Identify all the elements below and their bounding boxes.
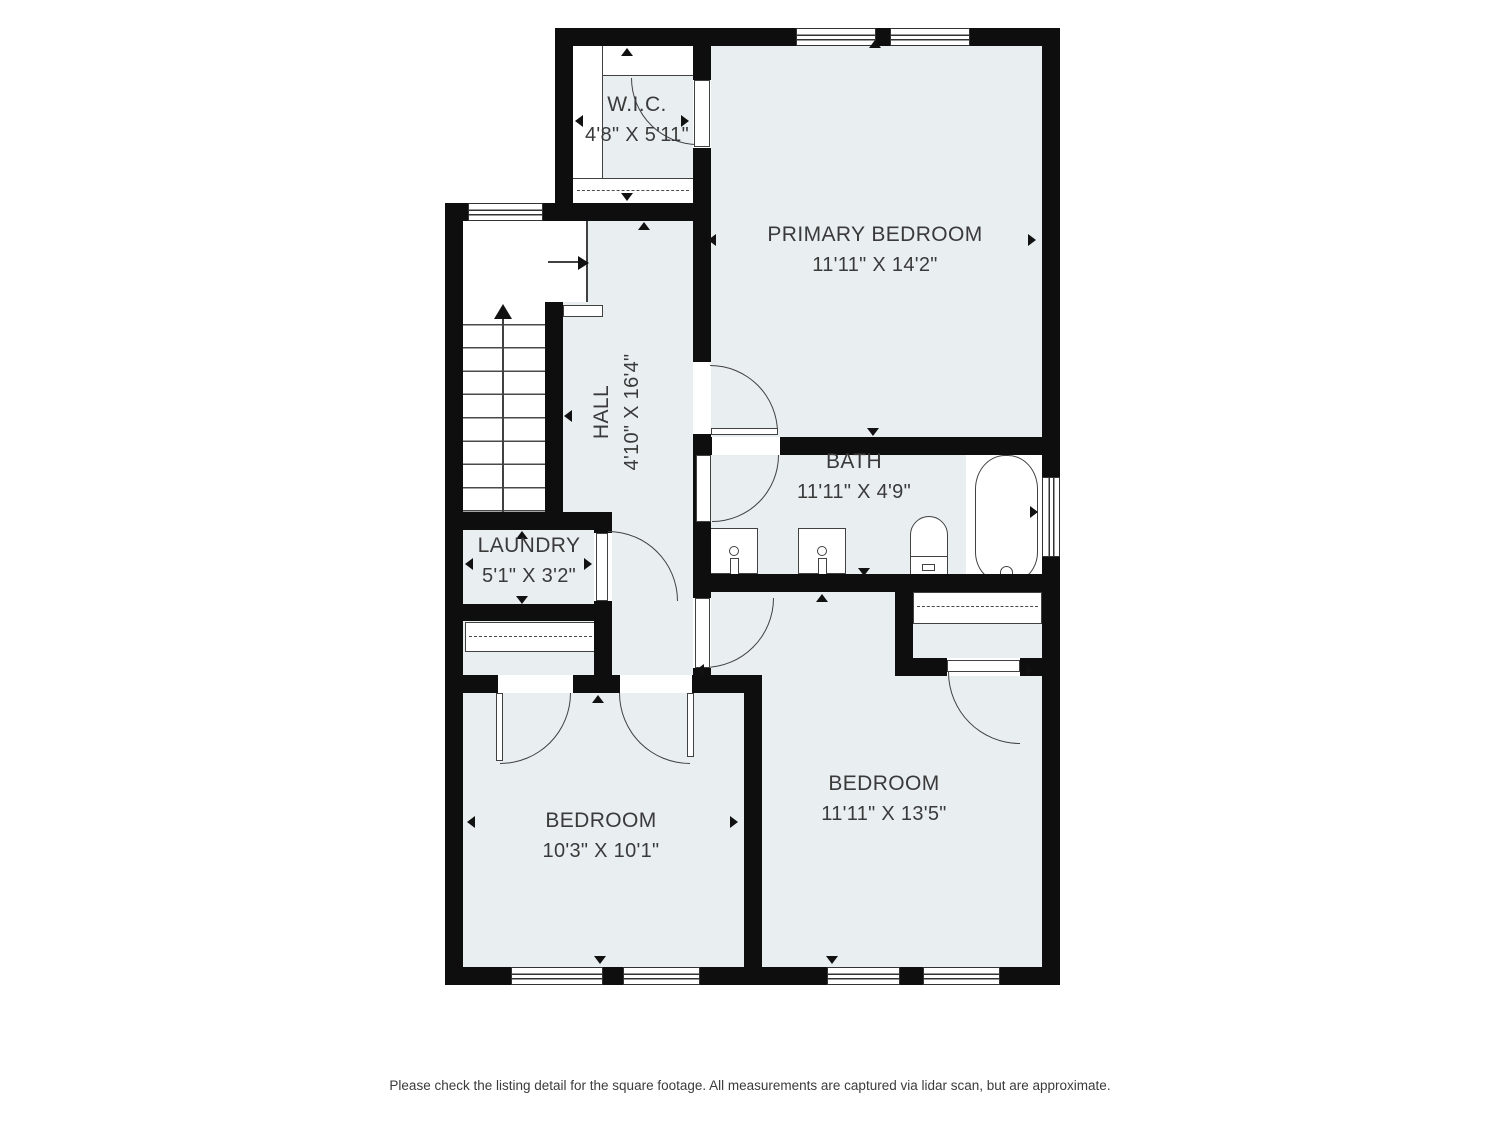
dimension-arrow <box>516 596 528 604</box>
wall-bath-bottom <box>693 574 1042 592</box>
room-name: BEDROOM <box>821 772 946 796</box>
room-dims: 4'8" X 5'11" <box>585 124 689 147</box>
room-label-bath: BATH 11'11" X 4'9" <box>797 450 911 504</box>
sink-faucet-1 <box>730 558 739 575</box>
dimension-arrow <box>826 956 838 964</box>
sink-drain-2 <box>817 546 827 556</box>
doorway-closet-left <box>498 675 573 693</box>
wall-bedrooms-top <box>445 675 762 693</box>
dimension-arrow <box>465 558 473 570</box>
sink-faucet-2 <box>818 558 827 575</box>
room-name: PRIMARY BEDROOM <box>767 223 982 247</box>
room-dims: 5'1" X 3'2" <box>478 565 581 588</box>
dimension-arrow <box>575 115 583 127</box>
room-label-primary-bedroom: PRIMARY BEDROOM 11'11" X 14'2" <box>767 223 982 277</box>
dimension-arrow <box>1030 506 1038 518</box>
dimension-arrow <box>730 816 738 828</box>
dimension-arrow <box>867 428 879 436</box>
wall-between-bedrooms <box>744 675 762 967</box>
window-bedroom-right-1 <box>827 967 900 985</box>
wall-stair-right <box>545 302 563 513</box>
dimension-arrow <box>621 48 633 56</box>
door-leaf-wic <box>694 80 710 147</box>
room-label-wic: W.I.C. 4'8" X 5'11" <box>585 93 689 147</box>
closet-right-shelf <box>913 592 1042 624</box>
stairs-center-line <box>502 306 504 513</box>
stairs-up-arrow <box>494 304 512 319</box>
room-name: HALL <box>590 354 614 471</box>
closet-left-rod <box>469 636 592 637</box>
floor-plan: W.I.C. 4'8" X 5'11" PRIMARY BEDROOM 11'1… <box>0 0 1500 1125</box>
wall-left-upper <box>555 28 573 221</box>
room-dims: 10'3" X 10'1" <box>543 840 660 863</box>
door-leaf-closet-right <box>947 660 1020 672</box>
room-label-laundry: LAUNDRY 5'1" X 3'2" <box>478 534 581 588</box>
dimension-arrow <box>869 40 881 48</box>
window-bedroom-right-2 <box>923 967 1000 985</box>
dimension-arrow <box>467 816 475 828</box>
window-stair <box>468 203 543 221</box>
dimension-arrow <box>594 956 606 964</box>
door-leaf-primary <box>711 428 778 435</box>
closet-left-shelf <box>465 622 596 652</box>
wall-closet-left-right <box>594 621 612 675</box>
dimension-arrow <box>638 222 650 230</box>
dimension-arrow <box>584 558 592 570</box>
room-name: W.I.C. <box>585 93 689 117</box>
closet-right-rod <box>917 606 1038 607</box>
stair-flow-arrow <box>578 256 589 270</box>
room-label-bedroom-right: BEDROOM 11'11" X 13'5" <box>821 772 946 826</box>
wall-left-main <box>445 203 463 985</box>
window-bedroom-left-1 <box>511 967 603 985</box>
doorway-bath <box>712 437 780 455</box>
wall-laundry-bottom <box>445 604 612 621</box>
room-name: LAUNDRY <box>478 534 581 558</box>
door-leaf-bedroom-right <box>695 598 710 668</box>
toilet-button <box>922 564 935 571</box>
dimension-arrow <box>592 695 604 703</box>
window-bath <box>1042 477 1060 557</box>
door-leaf-closet-left <box>496 693 503 761</box>
doorway-bedroom-left <box>620 675 692 693</box>
dimension-arrow <box>564 410 572 422</box>
room-label-hall: HALL 4'10" X 16'4" <box>590 354 644 471</box>
room-label-bedroom-left: BEDROOM 10'3" X 10'1" <box>543 809 660 863</box>
door-leaf-laundry <box>596 533 608 601</box>
wall-laundry-top <box>445 512 612 530</box>
room-name: BEDROOM <box>543 809 660 833</box>
door-leaf-bedroom-left <box>687 693 694 757</box>
room-dims: 4'10" X 16'4" <box>621 354 644 471</box>
window-primary-1 <box>796 28 876 46</box>
dimension-arrow <box>1028 234 1036 246</box>
dimension-arrow <box>696 664 704 676</box>
wall-wic-bottom <box>555 203 711 221</box>
sink-drain-1 <box>729 546 739 556</box>
stairs <box>463 302 545 513</box>
wic-closet-strip <box>573 178 693 204</box>
room-dims: 11'11" X 14'2" <box>767 254 982 277</box>
room-dims: 11'11" X 13'5" <box>821 803 946 826</box>
wic-closet-rod <box>577 190 689 191</box>
door-leaf-bath <box>696 455 711 522</box>
dimension-arrow <box>621 193 633 201</box>
dimension-arrow <box>708 234 716 246</box>
stair-handrail-cap <box>563 305 603 317</box>
dimension-arrow <box>858 568 870 576</box>
bathtub <box>975 455 1038 582</box>
doorway-primary <box>693 362 711 434</box>
window-bedroom-left-2 <box>623 967 700 985</box>
dimension-arrow <box>1026 664 1034 676</box>
room-dims: 11'11" X 4'9" <box>797 481 911 504</box>
room-name: BATH <box>797 450 911 474</box>
window-primary-2 <box>890 28 970 46</box>
disclaimer-text: Please check the listing detail for the … <box>0 1078 1500 1093</box>
stair-flow-line <box>548 261 580 263</box>
dimension-arrow <box>816 594 828 602</box>
